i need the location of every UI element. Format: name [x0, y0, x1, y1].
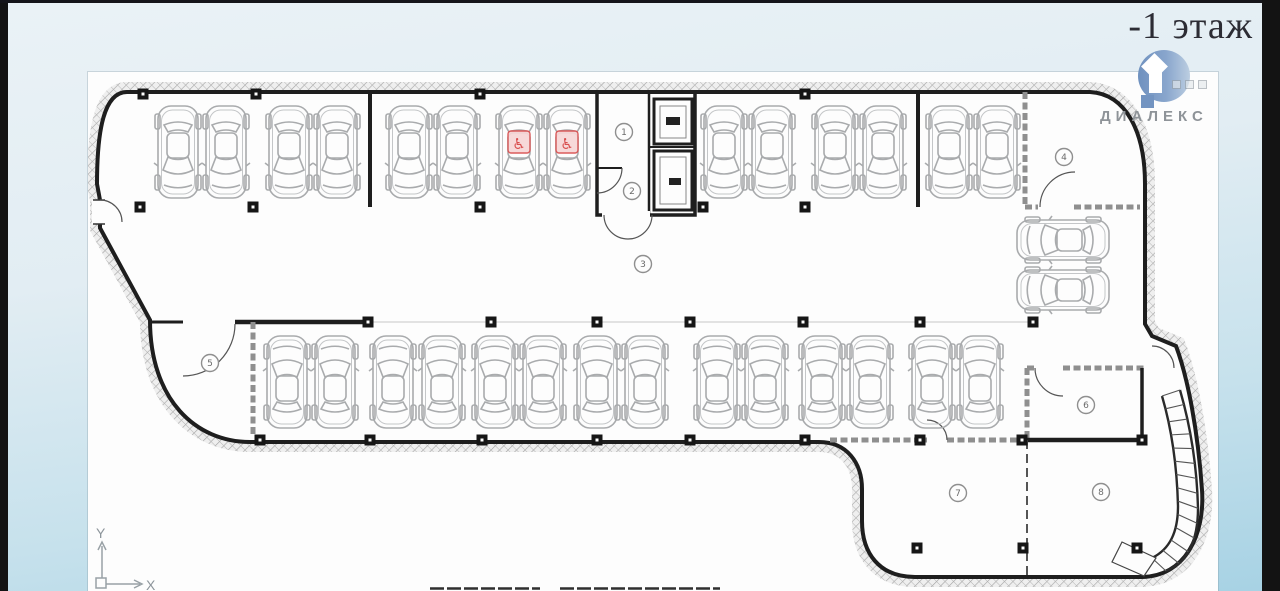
- svg-text:8: 8: [1098, 488, 1104, 498]
- column: [685, 317, 696, 328]
- column: [475, 202, 486, 213]
- floor-title: -1 этаж: [1128, 4, 1253, 48]
- column: [365, 435, 376, 446]
- wheelchair-badge: ♿: [556, 131, 578, 153]
- ramp-step: [1173, 448, 1193, 449]
- plan-panel: ♿♿ 12345678 Y X: [88, 72, 1218, 591]
- dialex-logo-text: ДИАЛЕКС: [1100, 108, 1208, 125]
- column: [486, 317, 497, 328]
- wheelchair-badge: ♿: [508, 131, 530, 153]
- floor-plan-svg: ♿♿ 12345678 Y X: [88, 72, 1218, 591]
- logo-watermark-icons: [1172, 80, 1207, 89]
- column: [1137, 435, 1148, 446]
- column: [248, 202, 259, 213]
- room-label: 2: [624, 183, 641, 200]
- column: [363, 317, 374, 328]
- dialex-logo: ДИАЛЕКС: [1095, 46, 1245, 130]
- room-label: 7: [950, 485, 967, 502]
- axis-y-label: Y: [96, 525, 106, 541]
- svg-text:5: 5: [207, 359, 213, 369]
- right-black-edge: [1262, 0, 1280, 591]
- svg-text:1: 1: [621, 128, 627, 138]
- axis-x-label: X: [146, 577, 156, 591]
- column: [1028, 317, 1039, 328]
- column: [138, 89, 149, 100]
- column: [477, 435, 488, 446]
- column: [798, 317, 809, 328]
- axis-indicator: Y X: [96, 525, 156, 591]
- column: [800, 202, 811, 213]
- room-label: 4: [1056, 149, 1073, 166]
- svg-text:♿: ♿: [512, 135, 525, 153]
- column: [592, 435, 603, 446]
- column: [698, 202, 709, 213]
- column: [912, 543, 923, 554]
- watermark-icon: [1172, 80, 1181, 89]
- elevator-cab-mark: [666, 117, 680, 125]
- room-label: 5: [202, 355, 219, 372]
- presentation-slide: -1 этаж: [0, 0, 1280, 591]
- column: [1018, 543, 1029, 554]
- svg-text:3: 3: [640, 260, 646, 270]
- column: [592, 317, 603, 328]
- column: [1132, 543, 1143, 554]
- room-label: 8: [1093, 484, 1110, 501]
- watermark-icon: [1198, 80, 1207, 89]
- column: [915, 435, 926, 446]
- svg-text:♿: ♿: [560, 135, 573, 153]
- room-label: 3: [635, 256, 652, 273]
- left-black-edge: [0, 0, 8, 591]
- watermark-icon: [1185, 80, 1194, 89]
- svg-text:7: 7: [955, 489, 961, 499]
- svg-text:4: 4: [1061, 153, 1067, 163]
- column: [255, 435, 266, 446]
- column: [685, 435, 696, 446]
- svg-text:2: 2: [629, 187, 635, 197]
- room-label: 1: [616, 124, 633, 141]
- room-label: 6: [1078, 397, 1095, 414]
- svg-text:6: 6: [1083, 401, 1089, 411]
- column: [800, 89, 811, 100]
- column: [800, 435, 811, 446]
- column: [1017, 435, 1028, 446]
- column: [475, 89, 486, 100]
- column: [251, 89, 262, 100]
- top-black-edge: [0, 0, 1280, 3]
- column: [915, 317, 926, 328]
- column: [135, 202, 146, 213]
